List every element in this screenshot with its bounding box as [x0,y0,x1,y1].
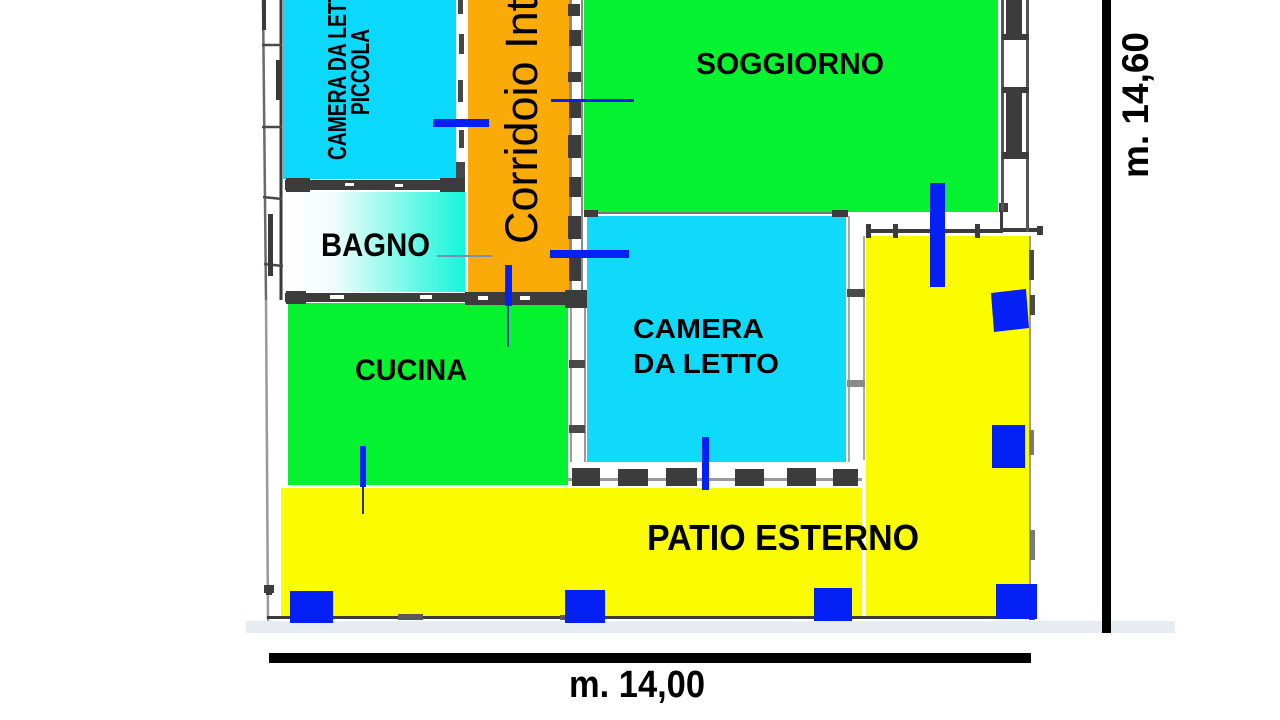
svg-text:BAGNO: BAGNO [321,227,430,263]
svg-text:Corridoio Interno: Corridoio Interno [496,0,547,244]
svg-text:CUCINA: CUCINA [355,354,467,387]
svg-text:SOGGIORNO: SOGGIORNO [696,46,884,81]
svg-text:m. 14,60: m. 14,60 [1115,32,1156,178]
svg-text:PICCOLA: PICCOLA [345,29,375,115]
svg-text:PATIO ESTERNO: PATIO ESTERNO [647,517,919,558]
svg-text:m. 14,00: m. 14,00 [569,664,705,706]
svg-text:DA LETTO: DA LETTO [633,348,779,379]
svg-text:CAMERA: CAMERA [633,313,764,344]
